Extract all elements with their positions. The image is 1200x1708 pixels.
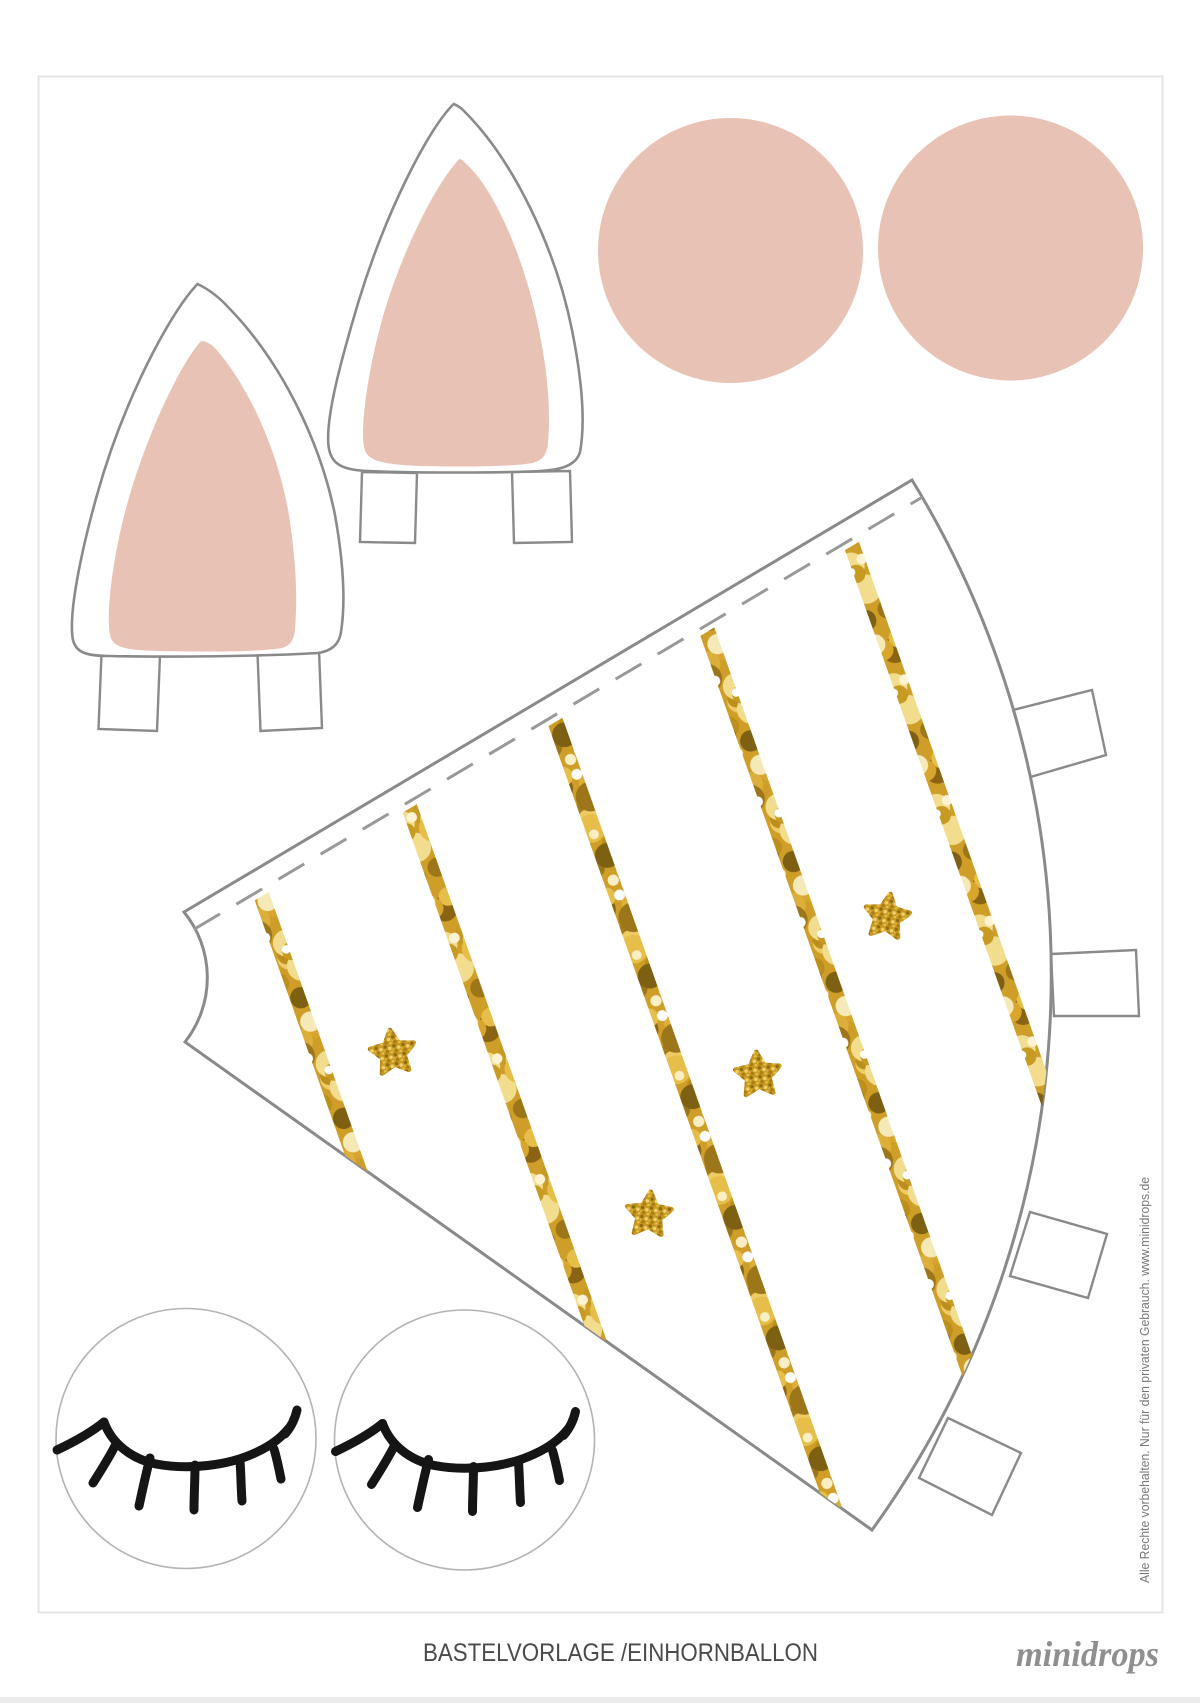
svg-text:BASTELVORLAGE /EINHORNBALLON: BASTELVORLAGE /EINHORNBALLON [423,1639,818,1667]
svg-text:Alle Rechte vorbehalten. Nur f: Alle Rechte vorbehalten. Nur für den pri… [1138,1177,1152,1583]
svg-text:minidrops: minidrops [1016,1634,1159,1674]
